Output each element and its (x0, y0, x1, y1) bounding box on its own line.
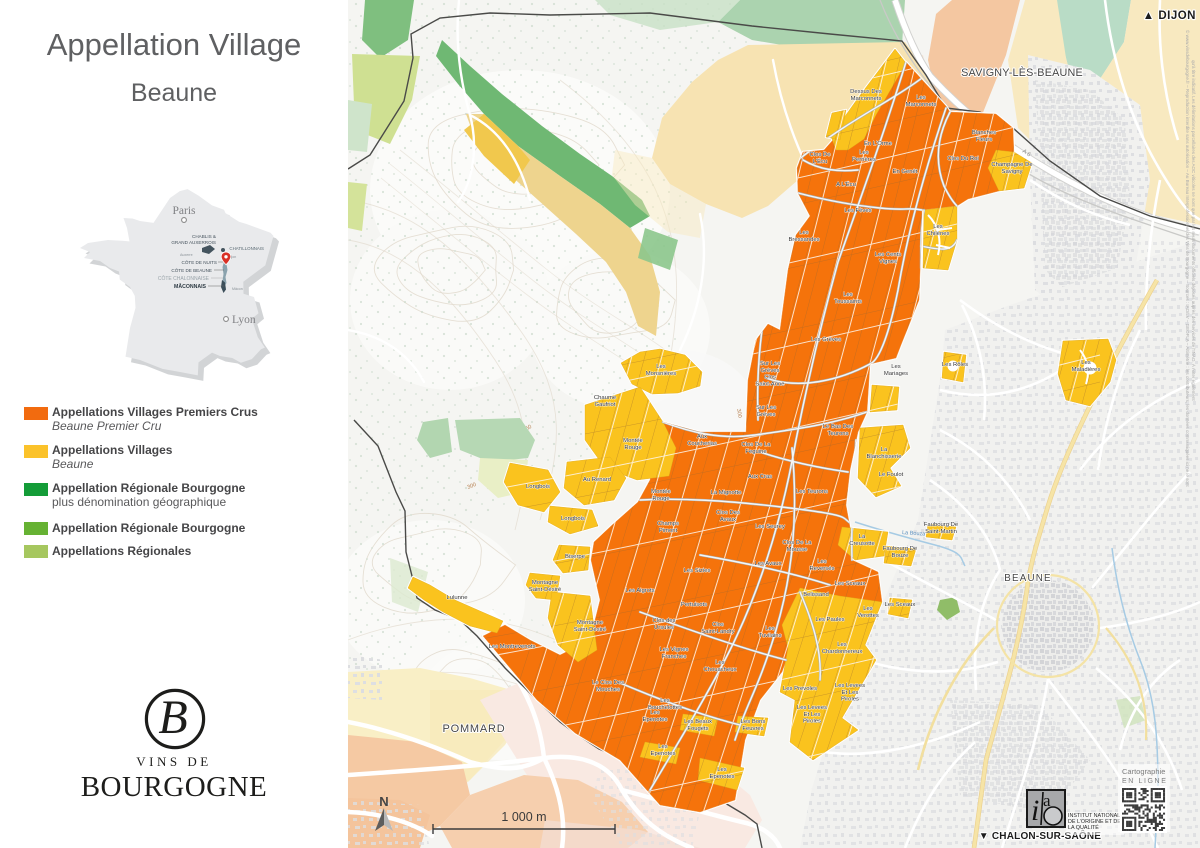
svg-text:Les BeauxFougets: Les BeauxFougets (684, 719, 712, 732)
svg-text:Les Sizies: Les Sizies (684, 568, 711, 574)
svg-text:Longbois: Longbois (526, 484, 550, 490)
svg-text:BEAUNE: BEAUNE (1004, 573, 1052, 584)
svg-text:En L'Orme: En L'Orme (864, 141, 893, 147)
svg-text:Faubourg DeSaint-Martin: Faubourg DeSaint-Martin (924, 522, 959, 535)
svg-text:Les Prevoles: Les Prevoles (783, 686, 817, 692)
svg-text:Les Fèves: Les Fèves (844, 208, 871, 214)
svg-text:Les Montrevenots: Les Montrevenots (489, 644, 536, 650)
svg-text:Paris: Paris (173, 205, 197, 217)
svg-text:i: i (1031, 794, 1039, 827)
svg-text:CHABLIS &: CHABLIS & (192, 234, 216, 239)
svg-text:Les Seurey: Les Seurey (755, 524, 785, 530)
svg-text:MÂCONNAIS: MÂCONNAIS (174, 283, 207, 290)
svg-text:CÔTE DE NUITS: CÔTE DE NUITS (182, 259, 217, 265)
svg-text:Les Aigrots: Les Aigrots (625, 588, 654, 594)
svg-text:MontéeRouge: MontéeRouge (651, 489, 671, 502)
svg-text:EN LIGNE: EN LIGNE (1122, 778, 1167, 785)
svg-text:▲ DIJON: ▲ DIJON (1143, 10, 1196, 22)
svg-text:Clos Du Roi: Clos Du Roi (947, 156, 978, 162)
svg-text:Les VignesFranches: Les VignesFranches (659, 647, 688, 660)
svg-text:Pertuisots: Pertuisots (681, 602, 707, 608)
svg-text:Les Sceaux: Les Sceaux (885, 602, 916, 608)
svg-text:B: B (158, 691, 187, 744)
svg-text:Les Paules: Les Paules (815, 617, 844, 623)
svg-text:Les Rôles: Les Rôles (942, 362, 968, 368)
svg-text:CÔTE DE BEAUNE: CÔTE DE BEAUNE (171, 267, 212, 273)
svg-text:Les Sceaux: Les Sceaux (835, 581, 866, 587)
svg-text:Le Foulot: Le Foulot (879, 472, 904, 478)
svg-text:Aux Cras: Aux Cras (748, 474, 772, 480)
svg-text:© www.vinsdebourgogne.fr – Rep: © www.vinsdebourgogne.fr – Reproduction … (1185, 30, 1191, 487)
svg-text:MontéeRouge: MontéeRouge (623, 438, 643, 451)
svg-text:Les Grèves: Les Grèves (811, 337, 841, 343)
svg-text:MontagneSaint-Désiré: MontagneSaint-Désiré (574, 620, 607, 633)
svg-text:Belissand: Belissand (803, 592, 829, 598)
svg-text:ChaumeGaufriot: ChaumeGaufriot (594, 395, 617, 408)
svg-text:1 000 m: 1 000 m (501, 810, 546, 824)
svg-text:qu’à titre indicatif. Les déli: qu’à titre indicatif. Les délimitations … (1191, 60, 1197, 401)
svg-text:ChampsPimont: ChampsPimont (657, 521, 679, 534)
svg-text:La Mignotte: La Mignotte (711, 490, 743, 496)
svg-text:POMMARD: POMMARD (442, 723, 505, 735)
svg-text:Mâcon: Mâcon (232, 287, 243, 291)
svg-text:CÔTE CHALONNAISE: CÔTE CHALONNAISE (158, 275, 210, 282)
svg-text:Clos desUrsules: Clos desUrsules (653, 618, 676, 631)
svg-text:En Genêt: En Genêt (893, 169, 918, 175)
svg-text:N: N (379, 794, 388, 809)
svg-text:CHATILLONNAIS: CHATILLONNAIS (229, 246, 264, 251)
svg-text:Dessus DesMarconnets: Dessus DesMarconnets (850, 89, 882, 102)
svg-text:SAVIGNY-LÈS-BEAUNE: SAVIGNY-LÈS-BEAUNE (961, 66, 1083, 79)
svg-text:Biserpe: Biserpe (565, 554, 586, 560)
svg-text:A L'Écu: A L'Écu (836, 181, 856, 188)
svg-text:Sur LesGrèves: Sur LesGrèves (756, 405, 776, 418)
svg-text:Lulunne: Lulunne (447, 595, 469, 601)
svg-text:Les Teurons: Les Teurons (796, 489, 828, 495)
svg-text:Lyon: Lyon (232, 314, 256, 326)
svg-text:Au Renard: Au Renard (583, 477, 611, 483)
svg-text:Les BonsFeuvres: Les BonsFeuvres (741, 719, 766, 732)
svg-text:Les Avaux: Les Avaux (754, 561, 781, 567)
svg-text:MontagneSaint-Désiré: MontagneSaint-Désiré (529, 580, 562, 593)
svg-text:Auxerre: Auxerre (180, 253, 193, 257)
svg-text:Longbois: Longbois (561, 516, 585, 522)
svg-text:Le Clos DesMouches: Le Clos DesMouches (592, 680, 624, 693)
svg-text:GRAND AUXERROIS: GRAND AUXERROIS (171, 240, 216, 245)
svg-text:Cartographie: Cartographie (1122, 767, 1165, 776)
